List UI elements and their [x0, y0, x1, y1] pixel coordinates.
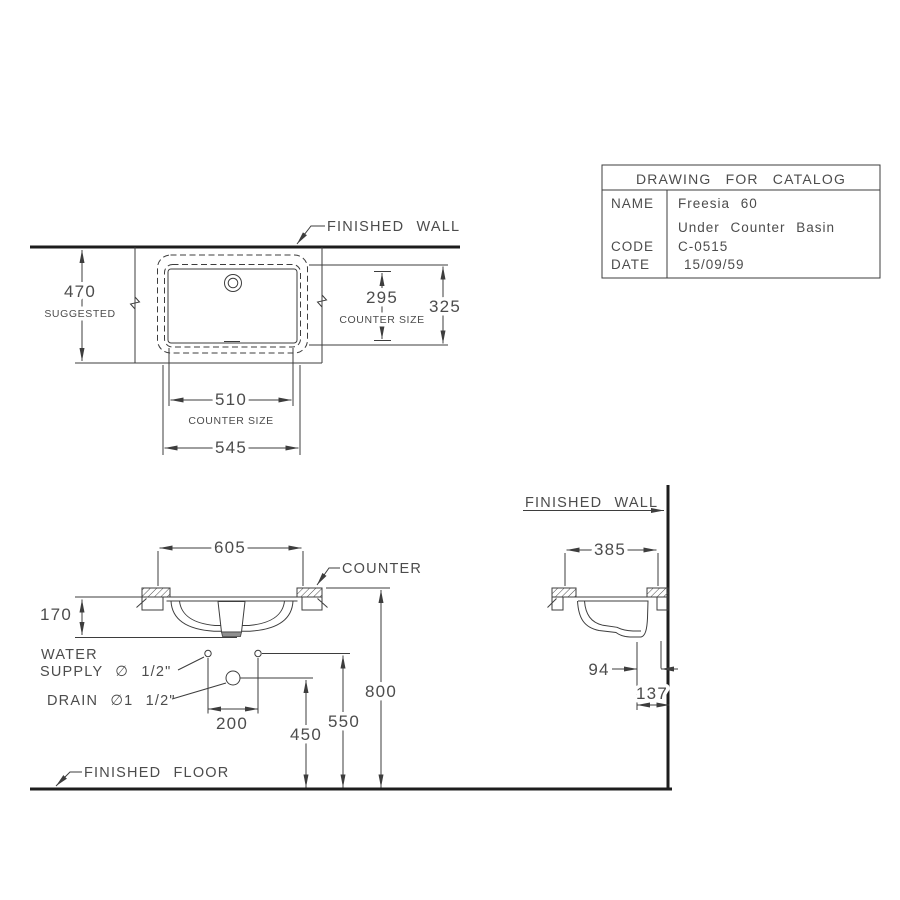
- dim-170-bowl-depth: 170: [40, 597, 237, 638]
- drain-label: DRAIN ∅1 1/2": [47, 693, 176, 709]
- dim-137-text: 137: [636, 684, 668, 703]
- counter-apron-right: [302, 597, 322, 610]
- dim-295-note: COUNTER SIZE: [339, 314, 424, 326]
- finished-wall-label-side: FINISHED WALL: [525, 495, 658, 511]
- top-view: FINISHED WALL 470 SUGGESTED 295 COUNTER …: [30, 219, 461, 457]
- dim-550-supply-height: 550: [328, 656, 360, 788]
- dim-94-drain-to-back: 94: [588, 660, 678, 679]
- dim-200-text: 200: [216, 714, 248, 733]
- title-block-title: DRAWING FOR CATALOG: [636, 171, 846, 187]
- dim-800-counter-height: 800: [326, 588, 397, 788]
- title-block: DRAWING FOR CATALOG NAME Freesia 60 Unde…: [602, 165, 880, 278]
- dim-605-width: 605: [158, 538, 303, 586]
- water-supply-label-line1: WATER: [41, 647, 98, 663]
- finished-wall-label-top: FINISHED WALL: [327, 219, 460, 235]
- dim-137-drain-to-wall: 137: [636, 684, 669, 705]
- bowl-inner-profile-side: [585, 601, 642, 631]
- code-label: CODE: [611, 239, 654, 254]
- dim-200-supply-spacing: 200: [208, 658, 258, 733]
- drain-outlet-shade: [222, 632, 242, 637]
- water-supply-point-right: [255, 650, 261, 656]
- dim-295-text: 295: [366, 288, 398, 307]
- dim-510-text: 510: [215, 390, 247, 409]
- counter-apron-wall-side: [657, 597, 668, 610]
- dim-470-note: SUGGESTED: [44, 308, 115, 320]
- side-view: FINISHED WALL 385 94 137: [523, 485, 678, 789]
- finished-wall-leader: [297, 226, 325, 244]
- catalog-drawing-sheet: DRAWING FOR CATALOG NAME Freesia 60 Unde…: [0, 0, 900, 900]
- basin-outer-dashed-outline: [158, 255, 308, 353]
- drain-leader: [172, 683, 226, 699]
- counter-cutout-outline: [168, 269, 297, 343]
- code-value: C-0515: [678, 239, 728, 254]
- counter-apron-side: [552, 597, 563, 610]
- dim-94-text: 94: [588, 660, 609, 679]
- counter-hatch-right-side: [647, 588, 668, 597]
- counter-apron-left: [142, 597, 163, 610]
- finished-floor-label: FINISHED FLOOR: [84, 765, 229, 781]
- finished-floor-leader: [56, 772, 82, 786]
- counter-hatch-left-side: [552, 588, 576, 597]
- dim-510-counter-size: 510 COUNTER SIZE: [169, 348, 293, 427]
- name-label: NAME: [611, 196, 654, 211]
- drain-tailpiece: [218, 602, 245, 633]
- dim-510-note: COUNTER SIZE: [188, 415, 273, 427]
- name-value-line2: Under Counter Basin: [678, 220, 835, 235]
- dim-545-text: 545: [215, 438, 247, 457]
- counter-hatch-left: [142, 588, 170, 597]
- dim-545-overall-width: 545: [163, 365, 300, 457]
- dim-605-text: 605: [214, 538, 246, 557]
- counter-hatch-right: [297, 588, 322, 597]
- dim-470-suggested: 470 SUGGESTED: [44, 250, 115, 361]
- basin-inner-dashed-outline: [165, 265, 301, 348]
- water-supply-leader: [178, 657, 204, 670]
- date-value: 15/09/59: [684, 257, 745, 272]
- dim-385-text: 385: [594, 540, 626, 559]
- water-supply-point-left: [205, 650, 211, 656]
- name-value-line1: Freesia 60: [678, 196, 758, 211]
- drain-point: [226, 671, 240, 685]
- counter-label: COUNTER: [342, 561, 422, 577]
- bowl-outer-profile-side: [578, 601, 649, 637]
- faucet-hole-inner: [228, 278, 238, 288]
- dim-550-text: 550: [328, 712, 360, 731]
- dim-295-counter-size: 295 COUNTER SIZE: [339, 272, 424, 341]
- dim-450-text: 450: [290, 725, 322, 744]
- dim-470-text: 470: [64, 282, 96, 301]
- dim-385-depth: 385: [565, 540, 658, 586]
- dim-450-drain-height: 450: [290, 680, 322, 788]
- water-supply-label-line2: SUPPLY ∅ 1/2": [40, 664, 171, 680]
- dim-800-text: 800: [365, 682, 397, 701]
- dim-170-text: 170: [40, 605, 72, 624]
- counter-leader: [317, 568, 340, 585]
- technical-drawing: DRAWING FOR CATALOG NAME Freesia 60 Unde…: [0, 0, 900, 900]
- front-view: 605 COUNTER 170 WATER: [30, 538, 672, 789]
- date-label: DATE: [611, 257, 650, 272]
- faucet-hole-outer: [225, 275, 242, 292]
- dim-325-text: 325: [429, 297, 461, 316]
